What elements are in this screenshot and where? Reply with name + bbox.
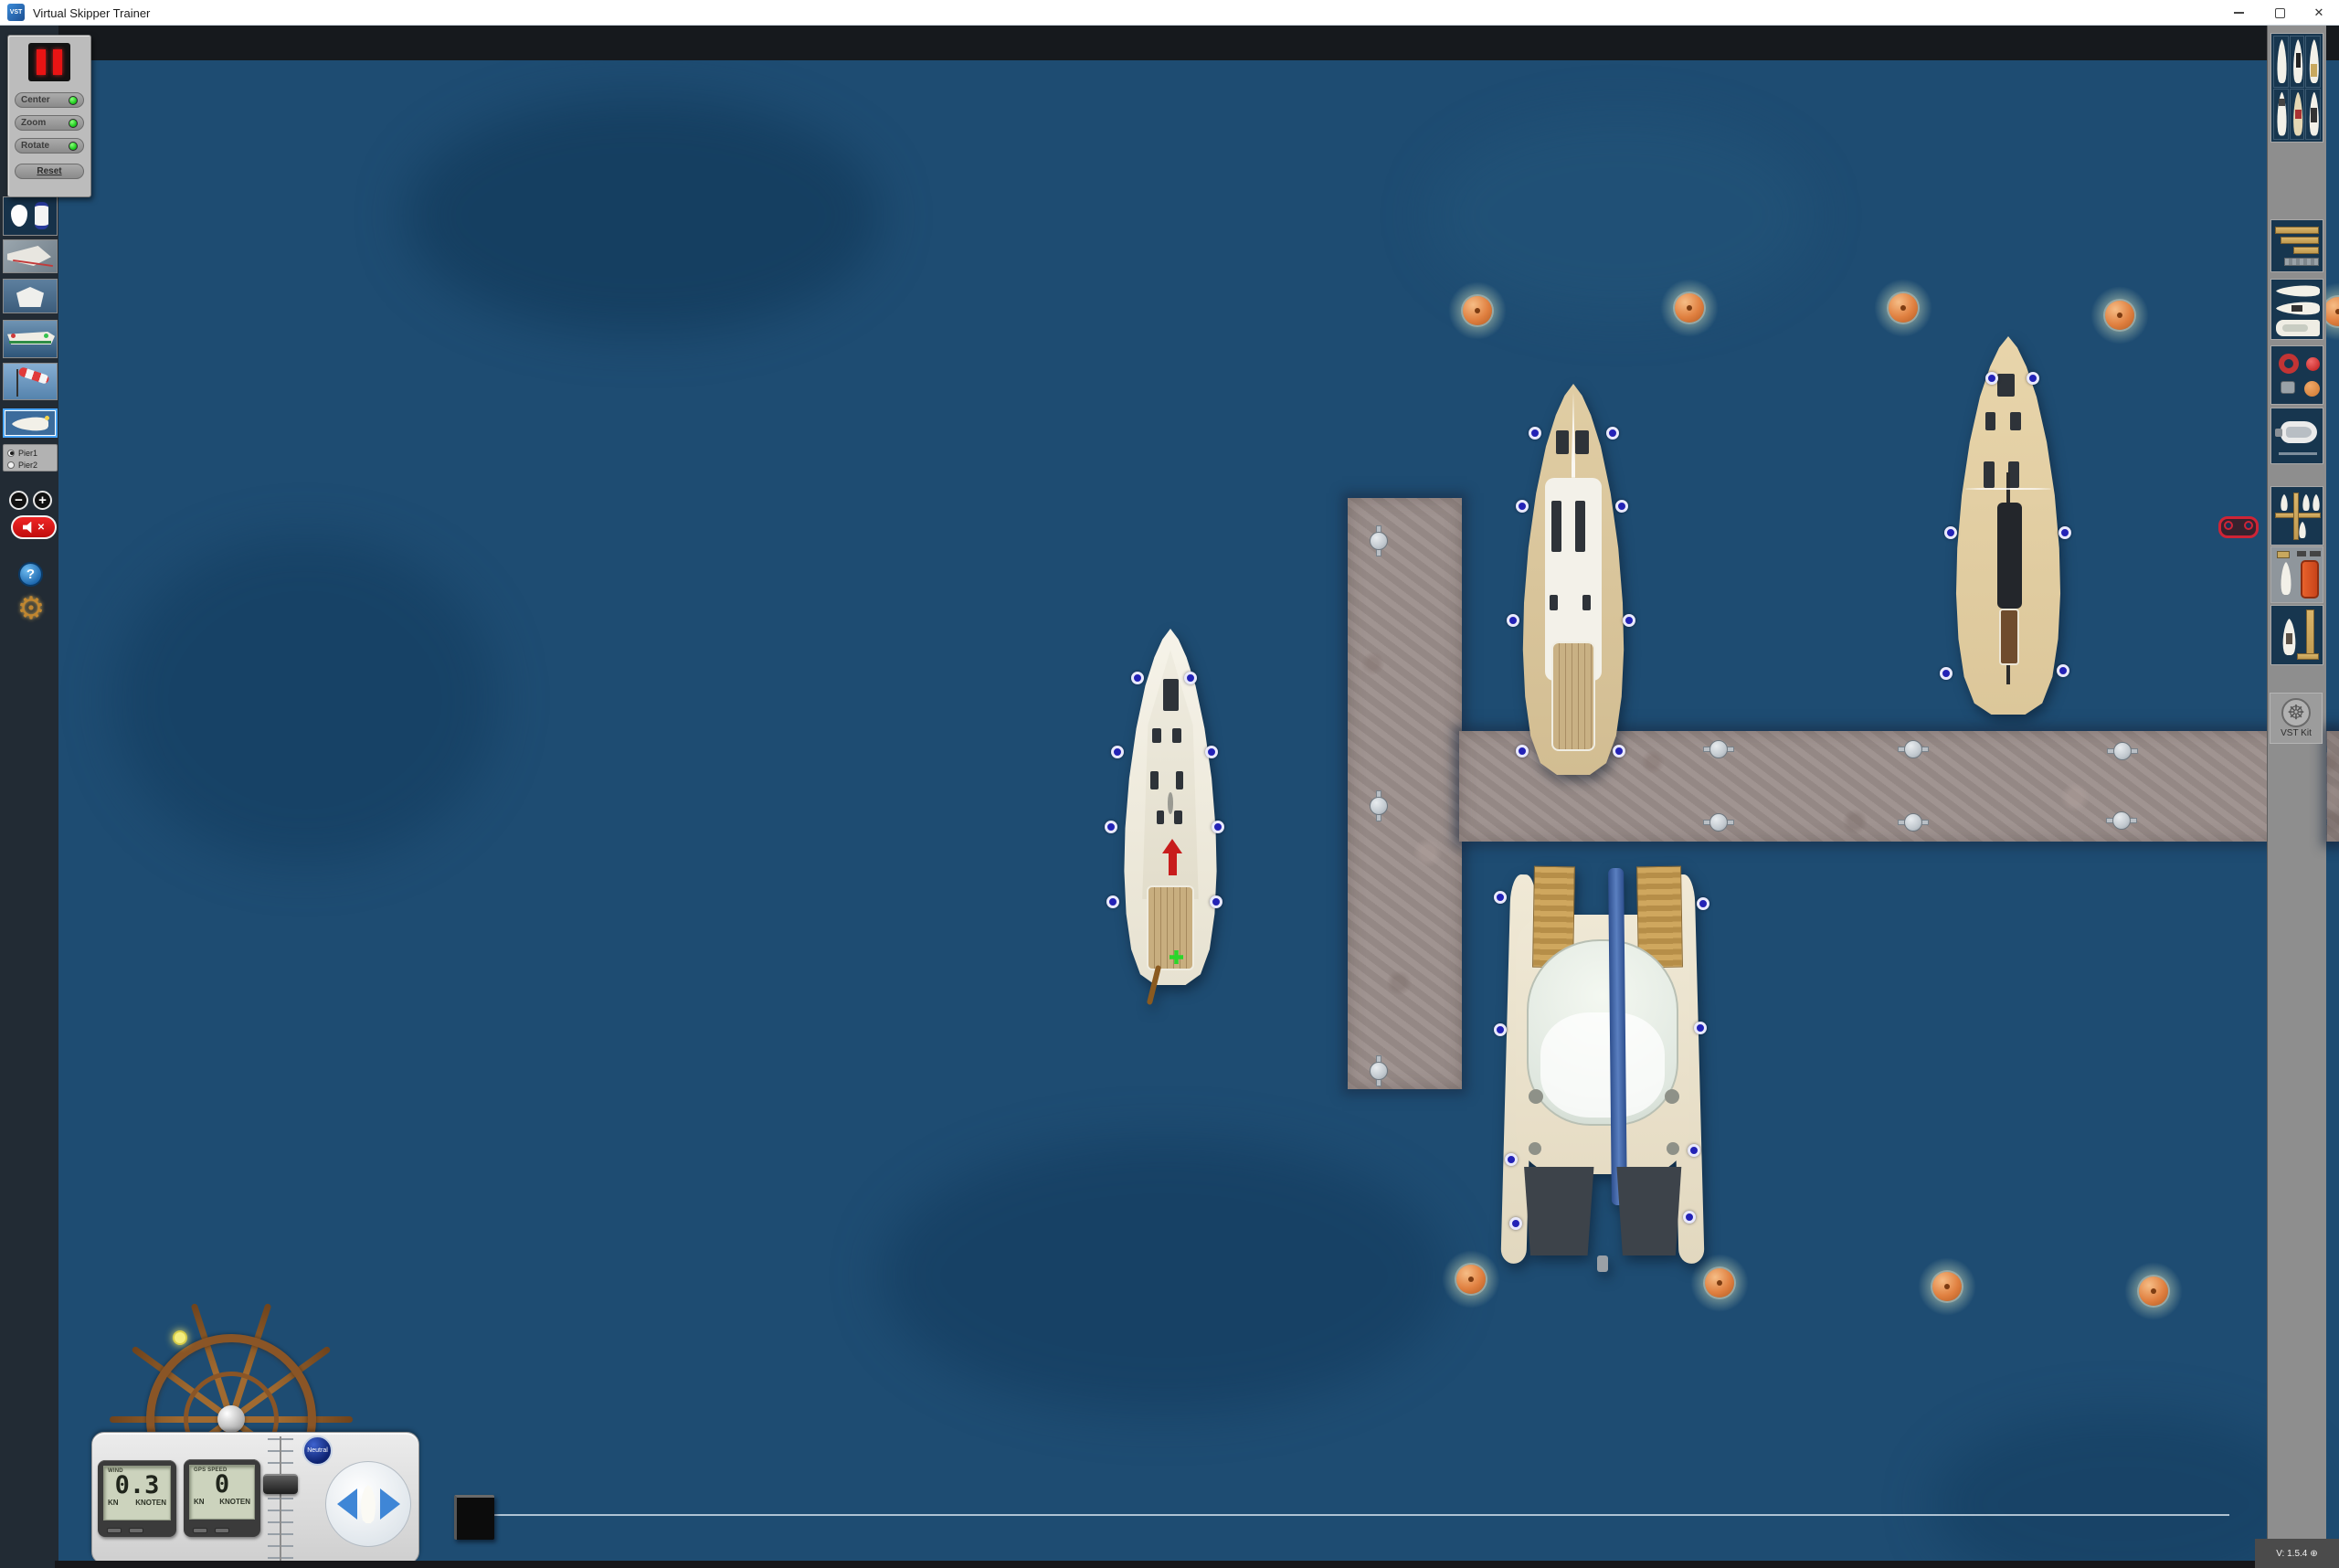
vst-kit-emblem: ☸ bbox=[2281, 698, 2311, 727]
maximize-icon bbox=[2275, 8, 2285, 18]
timeline-handle[interactable] bbox=[454, 1495, 494, 1540]
catamaran[interactable] bbox=[1506, 866, 1699, 1272]
fender-icon bbox=[35, 202, 48, 229]
buoy-dot bbox=[1475, 308, 1480, 313]
mooring-buoy[interactable] bbox=[1442, 1250, 1500, 1308]
reset-label: Reset bbox=[37, 166, 61, 176]
lcd-button[interactable] bbox=[193, 1528, 207, 1533]
timeline-track[interactable] bbox=[494, 1514, 2229, 1516]
mooring-buoy[interactable] bbox=[1918, 1257, 1976, 1316]
lcd-button[interactable] bbox=[129, 1528, 143, 1533]
gamepad-icon[interactable] bbox=[2218, 514, 2259, 541]
boat-type-cell[interactable] bbox=[2305, 89, 2321, 141]
dock-cleat bbox=[1703, 734, 1734, 765]
wheel-hub bbox=[217, 1405, 245, 1433]
marina-sailboat-left-drag-handle[interactable] bbox=[1516, 500, 1529, 513]
catamaran-drag-handle[interactable] bbox=[1688, 1144, 1700, 1157]
porthole bbox=[1667, 1142, 1679, 1155]
bow-fitting bbox=[1597, 1255, 1609, 1272]
liferaft-icon bbox=[2301, 560, 2319, 599]
hatch bbox=[2010, 412, 2020, 431]
radio-dot bbox=[7, 450, 15, 457]
windshield bbox=[1540, 1012, 1665, 1118]
player-sailboat-drag-handle[interactable] bbox=[1111, 746, 1124, 758]
red-buoy-icon bbox=[2306, 357, 2320, 371]
boat-pieces-panel[interactable] bbox=[2270, 279, 2323, 340]
pier-selector: Pier1 Pier2 bbox=[3, 444, 58, 471]
buoy-dot bbox=[1468, 1277, 1474, 1282]
catamaran-drag-handle[interactable] bbox=[1509, 1217, 1522, 1230]
dock-cleat bbox=[2106, 805, 2137, 836]
buoy-dot bbox=[1944, 1284, 1950, 1289]
throttle-handle[interactable] bbox=[263, 1474, 298, 1494]
marina-sailboat-right[interactable] bbox=[1952, 336, 2065, 715]
pier-sliver bbox=[2327, 731, 2339, 842]
close-button[interactable]: ✕ bbox=[2301, 0, 2337, 26]
wind-unit-short: KN bbox=[108, 1499, 119, 1507]
hull bbox=[1952, 336, 2065, 715]
gps-unit-short: KN bbox=[194, 1498, 205, 1506]
gray-plank bbox=[2284, 258, 2319, 266]
cockpit bbox=[1999, 609, 2019, 665]
pause-button[interactable] bbox=[28, 43, 70, 81]
player-sailboat-drag-handle[interactable] bbox=[1106, 895, 1119, 908]
buoy-dot bbox=[1900, 305, 1906, 311]
boat-type-cell[interactable] bbox=[2305, 36, 2321, 88]
dock-cleat bbox=[1363, 790, 1394, 821]
vst-kit-label: VST Kit bbox=[2281, 728, 2312, 738]
water-shade bbox=[113, 535, 497, 864]
thumb-bow-view[interactable] bbox=[3, 239, 58, 273]
item-icon bbox=[2297, 551, 2306, 556]
player-sailboat-drag-handle[interactable] bbox=[1205, 746, 1218, 758]
buoy-dot bbox=[2335, 309, 2339, 314]
cockpit bbox=[1551, 641, 1595, 751]
mooring-buoy[interactable] bbox=[1874, 279, 1932, 337]
mini-cabin bbox=[2282, 324, 2308, 332]
caption-blur bbox=[2279, 452, 2317, 455]
boat-type-cell[interactable] bbox=[2273, 36, 2289, 88]
reset-button[interactable]: Reset bbox=[15, 164, 84, 179]
minimize-icon bbox=[2234, 12, 2244, 14]
throttle-track[interactable] bbox=[280, 1436, 281, 1561]
thumb-stern-view[interactable] bbox=[3, 279, 58, 313]
wind-arrow bbox=[1162, 839, 1182, 875]
hatch bbox=[1575, 430, 1588, 454]
liferaft-panel[interactable] bbox=[2270, 546, 2323, 603]
version-bar: V: 1.5.4 ⊕ bbox=[2255, 1539, 2339, 1568]
pause-icon bbox=[37, 49, 46, 75]
zoom-out-button[interactable]: − bbox=[9, 491, 28, 510]
center-led bbox=[69, 96, 78, 105]
item-icon bbox=[2310, 551, 2321, 556]
dock-cleat bbox=[1363, 525, 1394, 556]
boat-type-cell[interactable] bbox=[2290, 89, 2305, 141]
speaker-icon bbox=[23, 522, 36, 534]
cockpit-mark bbox=[2291, 305, 2302, 312]
green-dot bbox=[44, 334, 48, 338]
dock-cleat bbox=[1703, 807, 1734, 838]
pier2-radio[interactable]: Pier2 bbox=[7, 459, 53, 471]
thrust-left-button[interactable] bbox=[337, 1489, 357, 1520]
neutral-button[interactable]: Neutral bbox=[302, 1436, 333, 1466]
sail-cover bbox=[1997, 503, 2022, 609]
marina-sailboat-left-drag-handle[interactable] bbox=[1516, 745, 1529, 758]
player-sailboat-drag-handle[interactable] bbox=[1131, 672, 1144, 684]
hatch bbox=[1575, 501, 1585, 552]
rotate-button[interactable]: Rotate bbox=[15, 138, 84, 154]
gps-speed-display: GPS SPEED 0 KN KNOTEN bbox=[184, 1459, 260, 1537]
catamaran-drag-handle[interactable] bbox=[1494, 1023, 1507, 1036]
zoom-button[interactable]: Zoom bbox=[15, 115, 84, 131]
hull bbox=[1519, 384, 1628, 775]
marina-sailboat-right-drag-handle[interactable] bbox=[1940, 667, 1953, 680]
buoy-dot bbox=[1687, 305, 1692, 311]
water-shade bbox=[881, 1139, 1447, 1413]
thumb-fenders[interactable] bbox=[3, 196, 58, 236]
close-icon: ✕ bbox=[2314, 5, 2324, 20]
dock-cleat bbox=[1898, 734, 1929, 765]
marina-sailboat-right-drag-handle[interactable] bbox=[2027, 372, 2039, 385]
gps-unit-long: KNOTEN bbox=[219, 1498, 250, 1506]
player-sailboat-drag-handle[interactable] bbox=[1210, 895, 1222, 908]
thumb-windsock[interactable] bbox=[3, 363, 58, 400]
player-sailboat-drag-handle[interactable] bbox=[1212, 821, 1224, 833]
titlebar: VST Virtual Skipper Trainer ✕ bbox=[0, 0, 2339, 26]
boat-type-cell[interactable] bbox=[2273, 89, 2289, 141]
hatch bbox=[1152, 728, 1161, 743]
rotate-label: Rotate bbox=[21, 141, 49, 151]
yellow-dot bbox=[45, 416, 49, 420]
dock-cleat bbox=[1898, 807, 1929, 838]
fender-icon bbox=[11, 205, 27, 227]
catamaran-drag-handle[interactable] bbox=[1683, 1211, 1696, 1224]
boat-stern-photo bbox=[16, 287, 44, 307]
wind-display: WIND 0.3 KN KNOTEN bbox=[98, 1460, 176, 1537]
hatch bbox=[1556, 430, 1569, 454]
catamaran-drag-handle[interactable] bbox=[1697, 897, 1709, 910]
porthole bbox=[1665, 1089, 1679, 1104]
camera-control-panel: Center Zoom Rotate Reset bbox=[7, 35, 91, 197]
marina-sailboat-left-drag-handle[interactable] bbox=[1623, 614, 1635, 627]
dinghy-panel[interactable] bbox=[2270, 408, 2323, 464]
boat-type-cell[interactable] bbox=[2290, 36, 2305, 88]
mooring-icon bbox=[2281, 381, 2295, 394]
bow-thruster-control bbox=[325, 1461, 411, 1547]
app-icon: VST bbox=[7, 4, 25, 21]
cockpit-mark bbox=[2286, 633, 2292, 644]
boat-icon bbox=[361, 1485, 376, 1523]
minimize-button[interactable] bbox=[2220, 0, 2257, 26]
vst-kit-button[interactable]: ☸ VST Kit bbox=[2270, 693, 2323, 744]
hatch bbox=[2008, 461, 2019, 488]
wind-value: 0.3 bbox=[108, 1474, 166, 1498]
hatch bbox=[1582, 595, 1592, 610]
pier2-label: Pier2 bbox=[18, 461, 37, 470]
mute-x-icon: ✕ bbox=[37, 523, 45, 533]
gear-icon: ⚙ bbox=[17, 590, 45, 627]
marina-sailboat-right-drag-handle[interactable] bbox=[1944, 526, 1957, 539]
hatch bbox=[1984, 461, 1995, 488]
thrust-right-button[interactable] bbox=[380, 1489, 400, 1520]
pause-icon bbox=[53, 49, 62, 75]
window-title: Virtual Skipper Trainer bbox=[33, 0, 150, 26]
orange-buoy-icon bbox=[2304, 381, 2320, 397]
zoom-in-button[interactable]: + bbox=[33, 491, 52, 510]
mute-button[interactable]: ✕ bbox=[11, 515, 57, 539]
thumb-topdown-selected[interactable] bbox=[3, 408, 58, 438]
dinghy-icon bbox=[2281, 421, 2317, 443]
red-dot bbox=[11, 334, 16, 338]
boat-top-icon bbox=[12, 417, 48, 431]
right-toolbar bbox=[2267, 26, 2326, 1568]
player-sailboat-drag-handle[interactable] bbox=[1105, 821, 1117, 833]
hatch bbox=[1176, 771, 1184, 789]
question-icon: ? bbox=[26, 567, 35, 582]
help-button[interactable]: ? bbox=[18, 562, 43, 587]
hatch bbox=[1174, 810, 1182, 825]
marina-sailboat-left-drag-handle[interactable] bbox=[1507, 614, 1519, 627]
hatch bbox=[1985, 412, 1995, 431]
player-sailboat-drag-handle[interactable] bbox=[1184, 672, 1197, 684]
buoy-pieces-panel[interactable] bbox=[2270, 345, 2323, 405]
l-dock-panel[interactable] bbox=[2270, 605, 2323, 665]
marina-sailboat-left-drag-handle[interactable] bbox=[1529, 427, 1541, 440]
dock-cleat bbox=[2107, 736, 2138, 767]
wind-unit-long: KNOTEN bbox=[135, 1499, 166, 1507]
marina-sailboat-right-drag-handle[interactable] bbox=[2059, 526, 2071, 539]
rotate-led bbox=[69, 142, 78, 151]
buoy-dot bbox=[2151, 1288, 2156, 1294]
mast-step bbox=[1168, 792, 1174, 813]
catamaran-drag-handle[interactable] bbox=[1505, 1153, 1518, 1166]
mooring-buoy[interactable] bbox=[1448, 281, 1507, 340]
windsock-icon bbox=[17, 366, 49, 385]
ring-buoy-icon bbox=[2279, 354, 2299, 374]
hatch bbox=[1997, 374, 2016, 397]
hatch bbox=[1163, 679, 1179, 711]
version-text: V: 1.5.4 bbox=[2276, 1549, 2307, 1559]
waterline bbox=[9, 341, 51, 344]
center-label: Center bbox=[21, 95, 50, 105]
marina-sailboat-right-drag-handle[interactable] bbox=[2057, 664, 2069, 677]
mooring-buoy[interactable] bbox=[2124, 1262, 2183, 1320]
wheel-marker bbox=[173, 1330, 187, 1345]
globe-icon: ⊕ bbox=[2310, 1549, 2317, 1559]
outboard-icon bbox=[2275, 429, 2282, 437]
settings-button[interactable]: ⚙ bbox=[13, 590, 49, 627]
marina-sailboat-left-drag-handle[interactable] bbox=[1615, 500, 1628, 513]
pier1-label: Pier1 bbox=[18, 449, 37, 458]
lcd-button[interactable] bbox=[107, 1528, 122, 1533]
mooring-buoy[interactable] bbox=[2090, 286, 2149, 344]
catamaran-drag-handle[interactable] bbox=[1494, 891, 1507, 904]
wheel-emblem-icon: ☸ bbox=[2287, 701, 2305, 725]
thumb-side-view[interactable] bbox=[3, 320, 58, 358]
catamaran-drag-handle[interactable] bbox=[1694, 1022, 1707, 1034]
hatch bbox=[1551, 501, 1561, 552]
neutral-label: Neutral bbox=[307, 1447, 328, 1454]
marina-sailboat-left[interactable] bbox=[1519, 384, 1628, 775]
zoom-led bbox=[69, 119, 78, 128]
hatch bbox=[1550, 595, 1559, 610]
dock-pieces-panel[interactable] bbox=[2270, 219, 2323, 272]
app-window: WIND 0.3 KN KNOTEN GPS SPEED 0 KN KNOTEN bbox=[0, 0, 2339, 1568]
mooring-buoy[interactable] bbox=[1660, 279, 1719, 337]
radio-dot bbox=[7, 461, 15, 469]
trampoline-right bbox=[1613, 1167, 1687, 1256]
trampoline-left bbox=[1519, 1167, 1599, 1256]
buoy-dot bbox=[1717, 1280, 1722, 1286]
crate-icon bbox=[2277, 551, 2290, 558]
hatch bbox=[1172, 728, 1181, 743]
marina-sailboat-right-drag-handle[interactable] bbox=[1985, 372, 1998, 385]
hatch bbox=[1157, 810, 1165, 825]
lcd-button[interactable] bbox=[215, 1528, 229, 1533]
marina-sailboat-left-drag-handle[interactable] bbox=[1613, 745, 1625, 758]
marina-sailboat-left-drag-handle[interactable] bbox=[1606, 427, 1619, 440]
buoy-dot bbox=[2117, 313, 2122, 318]
maximize-button[interactable] bbox=[2261, 0, 2298, 26]
deck-line bbox=[1965, 488, 2051, 490]
water-shade bbox=[406, 97, 881, 334]
gps-value: 0 bbox=[194, 1473, 250, 1497]
bottom-border bbox=[55, 1561, 2339, 1568]
hatch bbox=[1150, 771, 1159, 789]
boat-type-grid bbox=[2270, 33, 2323, 143]
dock-scenario-panel[interactable] bbox=[2270, 486, 2323, 546]
zoom-label: Zoom bbox=[21, 118, 46, 128]
pier1-radio[interactable]: Pier1 bbox=[7, 447, 53, 459]
app-icon-text: VST bbox=[10, 9, 23, 16]
center-button[interactable]: Center bbox=[15, 92, 84, 108]
dock-cleat bbox=[1363, 1055, 1394, 1086]
